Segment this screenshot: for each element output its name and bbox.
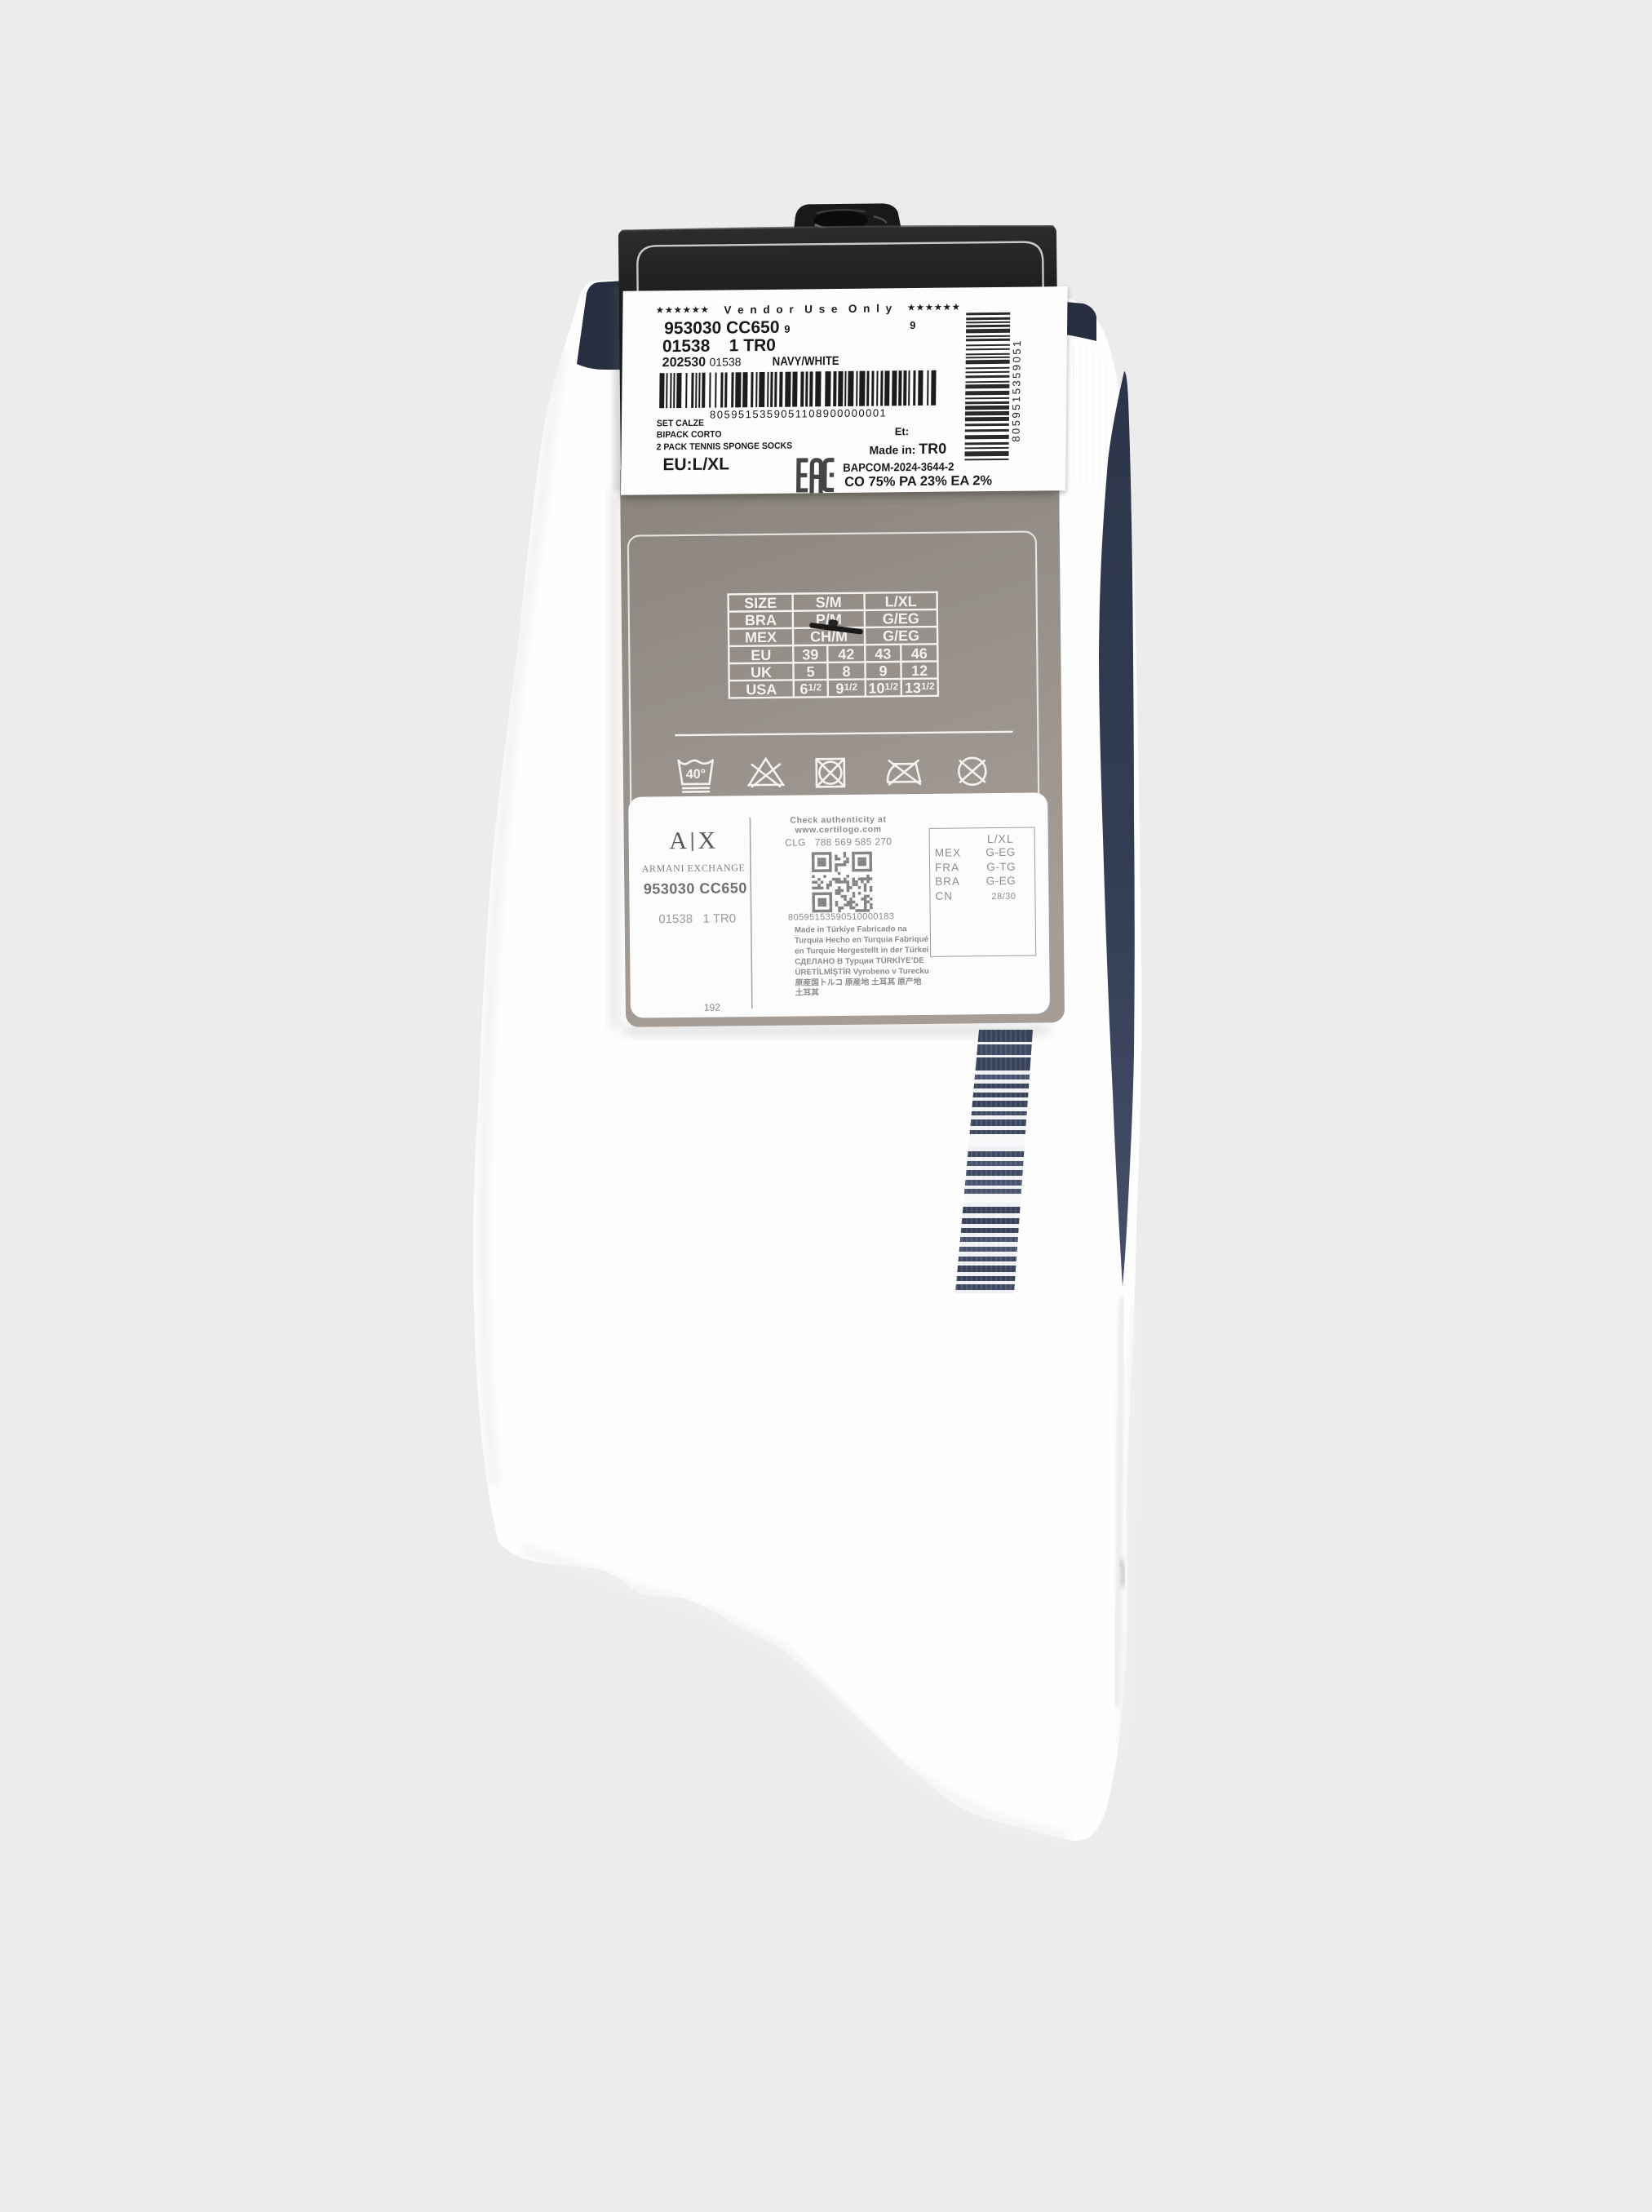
svg-text:40°: 40° (686, 768, 706, 782)
svg-text:MEX: MEX (745, 629, 777, 645)
svg-text:UK: UK (751, 664, 772, 680)
svg-text:G/EG: G/EG (883, 610, 919, 627)
svg-text:46: 46 (911, 645, 928, 662)
svg-text:39: 39 (802, 646, 818, 663)
svg-text:BRA: BRA (745, 612, 777, 628)
svg-text:9: 9 (879, 663, 887, 679)
svg-text:EU: EU (751, 647, 771, 663)
svg-text:USA: USA (746, 681, 777, 698)
svg-text:5: 5 (806, 663, 814, 680)
svg-text:L/XL: L/XL (885, 593, 917, 610)
svg-text:G/EG: G/EG (883, 627, 919, 644)
svg-text:42: 42 (838, 646, 854, 663)
svg-text:S/M: S/M (816, 594, 842, 610)
svg-text:SIZE: SIZE (744, 595, 777, 611)
svg-text:8: 8 (842, 663, 850, 680)
svg-text:43: 43 (875, 645, 891, 662)
svg-text:12: 12 (911, 663, 928, 679)
